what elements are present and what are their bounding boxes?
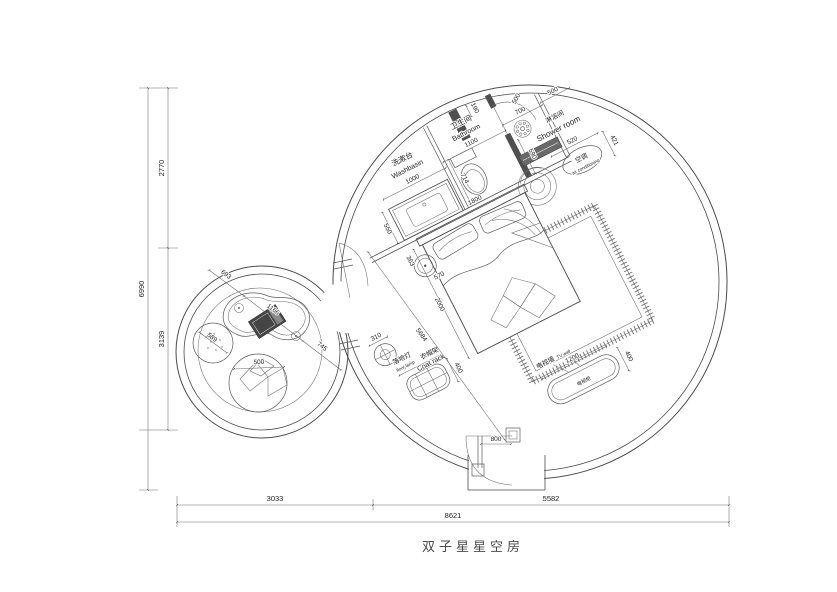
bedroom-block: 空调 air conditioning [291, 50, 714, 471]
floor-plan-page: 空调 air conditioning [0, 0, 837, 592]
vanity-depth-dim: 550 [382, 223, 393, 236]
door-hinge-post [506, 428, 520, 442]
tv-depth-dim: 400 [623, 350, 634, 363]
ac-depth-dim: 421 [608, 134, 619, 147]
cushion-dim: 500 [253, 359, 264, 366]
floor-plan-svg: 空调 air conditioning [0, 0, 837, 592]
ac-width-dim: 520 [566, 135, 579, 146]
small-room-inner-wall [184, 274, 340, 430]
bed-length-dim: 2000 [433, 297, 446, 313]
passage-opening-mask [320, 281, 372, 333]
height-bottom-dim: 3139 [157, 331, 166, 348]
tv-cabinet-label: 电视柜 [576, 375, 593, 388]
bed [416, 184, 583, 355]
coat-rack-dims: 660 衣帽架 Coat rack 400 [394, 339, 467, 404]
width-right-dim: 5582 [543, 494, 560, 503]
lounge-seg3-dim: 745 [315, 341, 328, 353]
entrance-opening-mask [469, 450, 544, 481]
entry-door-dim: 800 [491, 436, 502, 443]
washbasin-width: 1000 [405, 173, 421, 186]
lounge-room: 693 1166 745 589 500 [193, 269, 341, 412]
ac-unit: 空调 air conditioning [558, 140, 606, 180]
lamp-dia-dim: 310 [370, 332, 383, 343]
bean-table [223, 293, 309, 341]
left-dimensions: 6990 2770 3139 [137, 88, 178, 490]
width-left-dim: 3033 [267, 494, 284, 503]
coat-rack-depth-dim: 400 [453, 362, 464, 375]
height-top-dim: 2770 [157, 160, 166, 177]
pouf-dim: 589 [205, 332, 218, 344]
shower-head-icon [511, 117, 534, 140]
shower-door-leaf [493, 106, 508, 135]
width-total-dim: 8621 [445, 511, 462, 520]
bottom-dimensions: 3033 5582 8621 [177, 494, 729, 527]
height-total-dim: 6990 [137, 281, 146, 298]
shower-area [493, 86, 562, 166]
drawing-title: 双子星星空房 [422, 539, 524, 554]
tv-dims: 电视墙 TV wall 1200 400 [534, 322, 637, 408]
room-diagonal-value: 5684 [414, 327, 428, 343]
niche-dim: 190 [469, 102, 480, 115]
bed-width-dim: 1800 [467, 194, 483, 207]
lamp-dims: 310 落地灯 floor lamp [366, 324, 416, 379]
